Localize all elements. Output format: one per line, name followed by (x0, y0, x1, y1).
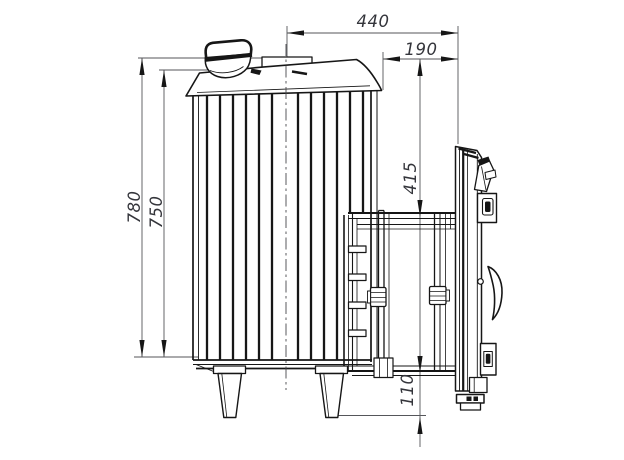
flange-clip-right (430, 287, 450, 305)
dim-bottom-clearance-label: 110 (398, 374, 417, 407)
left-leg (214, 366, 246, 374)
flange-foot (374, 358, 393, 378)
dim-height-body-label: 750 (147, 196, 166, 229)
dim-height-overall-label: 780 (125, 191, 144, 224)
legs (196, 365, 348, 418)
dim-top-width-label: 440 (357, 12, 390, 31)
side-bracket-rungs (344, 215, 366, 371)
door-assembly (456, 147, 503, 411)
door-frame-foot (457, 395, 485, 411)
right-leg (316, 366, 348, 374)
door-latch-keeper (478, 194, 497, 223)
door-latch-lower (481, 344, 497, 376)
dim-portal-height-label: 415 (401, 162, 420, 195)
dim-tunnel-width-label: 190 (405, 40, 438, 59)
stove-body (186, 40, 502, 417)
flange-clip-left (368, 288, 387, 307)
handle-pivot (478, 279, 484, 285)
door-bottom-step (470, 378, 488, 393)
stove-side-view-technical-drawing: 440 190 780 750 415 110 (0, 0, 624, 460)
mounting-flanges (368, 211, 450, 378)
door-handle (488, 267, 502, 320)
drawing-sheet: 440 190 780 750 415 110 (0, 0, 624, 460)
